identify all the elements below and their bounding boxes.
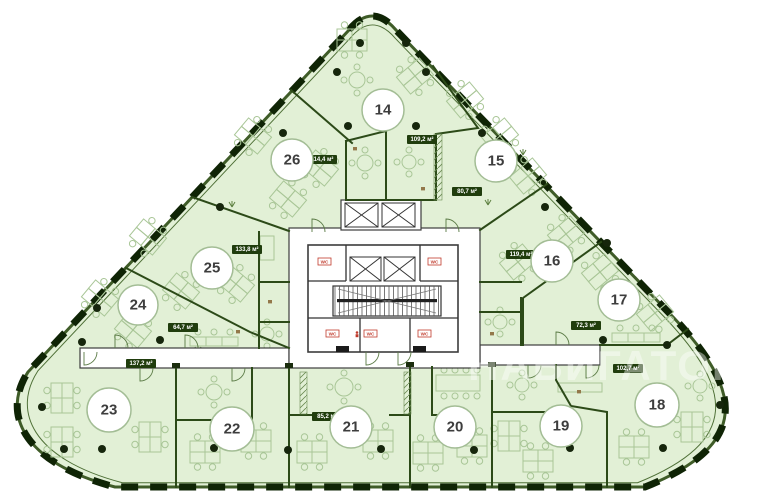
room-25[interactable]: 25 [191, 247, 233, 289]
wc-person-icon [356, 334, 359, 337]
svg-text:19: 19 [553, 418, 570, 435]
svg-text:133,8 м²: 133,8 м² [235, 246, 258, 253]
room-16[interactable]: 16 [531, 240, 573, 282]
area-badge-25: 133,8 м² [232, 245, 262, 254]
svg-text:22: 22 [224, 421, 241, 438]
room-19[interactable]: 19 [540, 405, 582, 447]
svg-text:20: 20 [447, 419, 464, 436]
elevator-lobby-top [341, 200, 421, 230]
svg-text:15: 15 [488, 153, 505, 170]
wc-label: WC [329, 331, 337, 336]
room-22[interactable]: 22 [210, 407, 254, 451]
column-dot [478, 129, 486, 137]
wc-person-icon [356, 331, 359, 334]
stairs-rail [337, 299, 437, 302]
svg-text:114,4 м²: 114,4 м² [311, 156, 334, 163]
wc-label: WC [321, 259, 329, 264]
room-26[interactable]: 26 [271, 139, 313, 181]
column-dot [356, 39, 364, 47]
column-dot [541, 203, 549, 211]
cup-icon [490, 332, 494, 335]
room-20[interactable]: 20 [434, 406, 476, 448]
column-dot [333, 68, 341, 76]
column-dot [60, 445, 68, 453]
cup-icon [236, 330, 240, 333]
column-dot [156, 336, 164, 344]
glass-wall [300, 372, 307, 414]
wc-label: WC [421, 331, 429, 336]
svg-text:26: 26 [284, 152, 301, 169]
room-21[interactable]: 21 [330, 406, 372, 448]
cup-icon [421, 187, 425, 190]
column-dot [402, 39, 410, 47]
door-stub [413, 346, 426, 352]
door-stub [336, 346, 349, 352]
column-dot [93, 304, 101, 312]
plant-icon [520, 149, 526, 155]
cup-icon [268, 300, 272, 303]
room-15[interactable]: 15 [475, 140, 517, 182]
svg-text:23: 23 [101, 402, 118, 419]
column-dot [603, 239, 611, 247]
svg-text:119,4 м²: 119,4 м² [510, 251, 533, 258]
room-18[interactable]: 18 [635, 383, 679, 427]
floor-plan-canvas: WC WC WC WC WC 109,2 м² 80,7 м² 119 [0, 0, 758, 500]
column-dot [716, 401, 724, 409]
svg-text:72,3 м²: 72,3 м² [576, 322, 596, 329]
svg-text:80,7 м²: 80,7 м² [457, 188, 477, 195]
column-dot [98, 445, 106, 453]
area-badge-17: 72,3 м² [571, 321, 601, 330]
svg-text:17: 17 [611, 292, 628, 309]
column-dot [412, 122, 420, 130]
column-dot [377, 445, 385, 453]
column-dot [216, 203, 224, 211]
column-dot [284, 446, 292, 454]
column-dot [470, 446, 478, 454]
column-dot [344, 122, 352, 130]
room-23[interactable]: 23 [87, 388, 131, 432]
column-dot [38, 403, 46, 411]
room-17[interactable]: 17 [598, 279, 640, 321]
column-dot [78, 338, 86, 346]
cup-icon [577, 390, 581, 393]
svg-text:137,2 м²: 137,2 м² [129, 360, 152, 367]
area-badge-14: 109,2 м² [407, 135, 437, 144]
column-dot [422, 68, 430, 76]
svg-text:18: 18 [649, 397, 666, 414]
svg-text:25: 25 [204, 260, 221, 277]
column-dot [659, 444, 667, 452]
svg-text:16: 16 [544, 253, 561, 270]
column-dot [279, 129, 287, 137]
svg-text:64,7 м²: 64,7 м² [173, 324, 193, 331]
svg-text:109,2 м²: 109,2 м² [410, 136, 433, 143]
floor-plan-svg: WC WC WC WC WC 109,2 м² 80,7 м² 119 [0, 0, 758, 500]
svg-text:24: 24 [130, 297, 147, 314]
wc-label: WC [367, 331, 375, 336]
glass-wall [404, 372, 411, 414]
svg-text:21: 21 [343, 419, 360, 436]
wc-label: WC [431, 259, 439, 264]
area-badge-15: 80,7 м² [452, 187, 482, 196]
cup-icon [353, 147, 357, 150]
corridor-left [80, 348, 289, 368]
area-badge-23: 137,2 м² [126, 359, 156, 368]
watermark: НАВИГАТОР [468, 342, 742, 389]
room-14[interactable]: 14 [362, 89, 404, 131]
room-24[interactable]: 24 [118, 285, 158, 325]
area-badge-24: 64,7 м² [168, 323, 198, 332]
svg-text:14: 14 [375, 102, 392, 119]
